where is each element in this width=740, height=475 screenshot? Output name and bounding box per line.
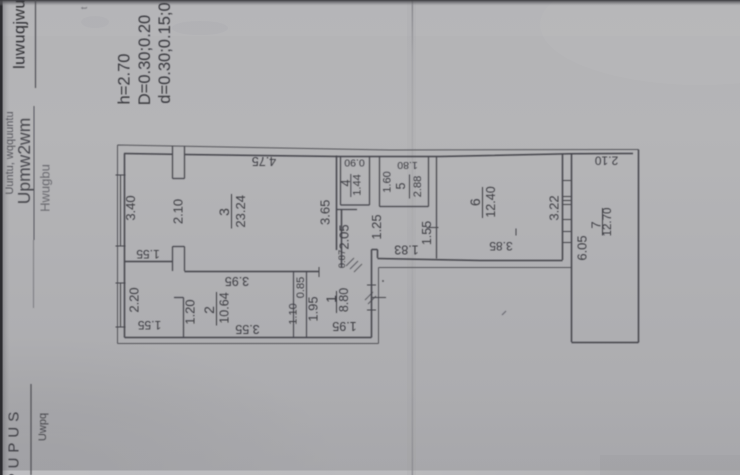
svg-text:3.22: 3.22	[547, 195, 562, 220]
svg-text:2.10: 2.10	[171, 199, 186, 224]
svg-text:6.05: 6.05	[575, 235, 590, 260]
svg-text:0.90: 0.90	[344, 157, 365, 169]
svg-text:1.60: 1.60	[382, 171, 394, 192]
svg-text:1.20: 1.20	[183, 299, 198, 324]
svg-text:d=0.30;0.15;0: d=0.30;0.15;0	[156, 2, 174, 103]
svg-text:0.87: 0.87	[337, 250, 348, 269]
svg-text:1.55: 1.55	[137, 318, 161, 332]
svg-text:Hwugbu: Hwugbu	[38, 164, 53, 212]
svg-text:1.10: 1.10	[288, 303, 300, 324]
svg-text:1.55: 1.55	[420, 221, 434, 245]
svg-text:1.80: 1.80	[397, 159, 418, 171]
svg-text:4.75: 4.75	[252, 154, 276, 168]
svg-text:h=2.70: h=2.70	[116, 54, 134, 105]
svg-text:1.95: 1.95	[332, 319, 356, 333]
svg-text:2.10: 2.10	[594, 154, 618, 168]
svg-text:12.70: 12.70	[602, 208, 614, 237]
svg-text:Uwpq: Uwpq	[37, 413, 49, 441]
svg-text:UPUPUS: UPUPUS	[6, 407, 23, 475]
svg-text:3: 3	[216, 208, 232, 216]
svg-text:3.40: 3.40	[123, 195, 138, 220]
svg-text:3.85: 3.85	[489, 239, 513, 253]
svg-text:1.83: 1.83	[394, 242, 418, 256]
svg-text:2: 2	[201, 306, 217, 314]
svg-text:12.40: 12.40	[484, 186, 498, 217]
svg-text:8.80: 8.80	[337, 288, 351, 312]
svg-text:3.95: 3.95	[225, 274, 249, 288]
svg-text:D=0.30;0.20: D=0.30;0.20	[136, 15, 154, 105]
svg-text:1.44: 1.44	[352, 174, 364, 195]
svg-text:6: 6	[467, 198, 483, 206]
svg-text:5: 5	[394, 182, 408, 189]
svg-text:2.05: 2.05	[337, 224, 352, 249]
svg-text:Upmw2wm: Upmw2wm	[14, 118, 34, 205]
svg-text:3.55: 3.55	[235, 322, 259, 336]
svg-text:10.64: 10.64	[218, 292, 232, 323]
svg-text:0.85: 0.85	[295, 277, 307, 298]
svg-text:3.65: 3.65	[318, 200, 333, 225]
svg-text:2.20: 2.20	[127, 287, 142, 312]
svg-text:luwuqjwu: luwuqjwu	[12, 0, 29, 69]
svg-text:2.88: 2.88	[412, 176, 424, 197]
svg-text:23.24: 23.24	[233, 195, 248, 228]
svg-text:1.25: 1.25	[369, 214, 384, 239]
svg-text:1.95: 1.95	[306, 296, 321, 321]
svg-text:1.55: 1.55	[136, 247, 160, 261]
